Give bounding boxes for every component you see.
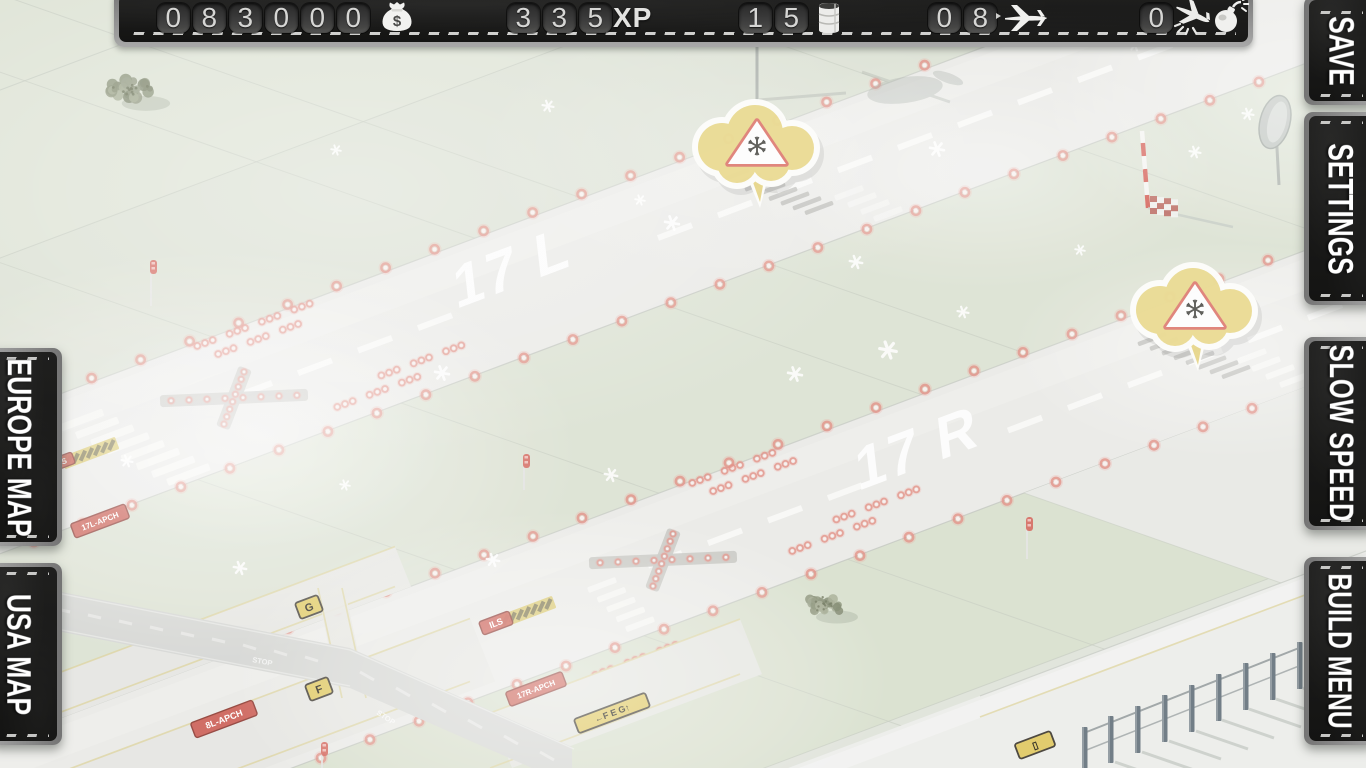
svg-text:$: $ [393,13,402,30]
